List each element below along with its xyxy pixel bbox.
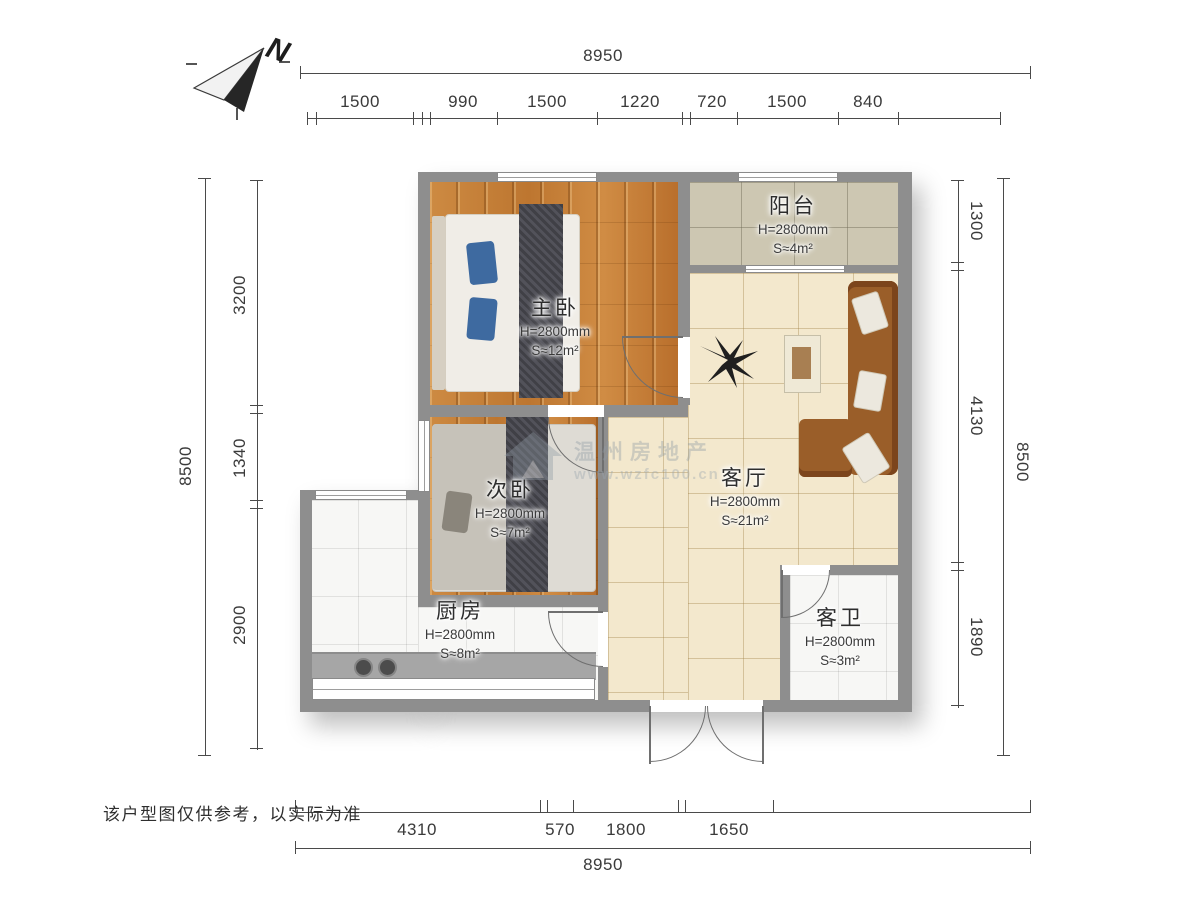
window [312,678,595,700]
pillow [466,297,498,341]
door-opening [548,405,604,417]
window [497,172,597,182]
window [315,490,407,500]
door-leaf [602,417,604,473]
disclaimer-text: 该户型图仅供参考，以实际为准 [103,800,362,825]
floor-plan-page: N 8950 1500 990 1500 1220 720 1500 840 8… [0,0,1200,900]
dim-bottom-seg: 4310 [397,820,437,840]
dim-bottom-seg: 1800 [606,820,646,840]
door-leaf [781,570,783,618]
room-balcony-floor [688,182,898,265]
dim-top-seg: 1220 [620,92,660,112]
dim-left-seg: 1340 [230,438,250,478]
entry-door-arc-left [650,706,706,762]
north-compass-icon: N [172,28,307,123]
room-hall-floor [608,417,688,700]
dim-bottom-total: 8950 [583,855,623,875]
stove-burner [378,658,397,677]
dim-bottom-seg: 570 [545,820,575,840]
dim-left-seg: 3200 [230,275,250,315]
dim-right-seg: 1890 [966,617,986,657]
bed-runner [506,416,548,592]
window [418,420,430,492]
window [738,172,838,182]
pillow [466,241,498,286]
window [745,265,845,273]
plant-icon [696,334,760,390]
door-leaf [548,611,603,613]
entry-door-leaf [762,706,764,764]
dim-top-seg: 1500 [767,92,807,112]
dim-top-seg: 1500 [527,92,567,112]
dim-top-total: 8950 [583,46,623,66]
stove-burner [354,658,373,677]
dim-top-seg: 990 [448,92,478,112]
dim-top-seg: 840 [853,92,883,112]
dim-top-seg: 1500 [340,92,380,112]
entry-door-arc-right [707,706,763,762]
dim-right-seg: 4130 [966,396,986,436]
dim-left-total: 8500 [176,446,196,486]
bed-runner [519,204,563,398]
dim-right-total: 8500 [1012,442,1032,482]
dim-right-seg: 1300 [966,201,986,241]
compass-n-label: N [262,31,295,70]
dim-top-seg: 720 [697,92,727,112]
dim-bottom-seg: 1650 [709,820,749,840]
door-leaf [622,336,683,338]
dim-left-seg: 2900 [230,605,250,645]
entry-door-leaf [649,706,651,764]
pillow [441,490,472,533]
